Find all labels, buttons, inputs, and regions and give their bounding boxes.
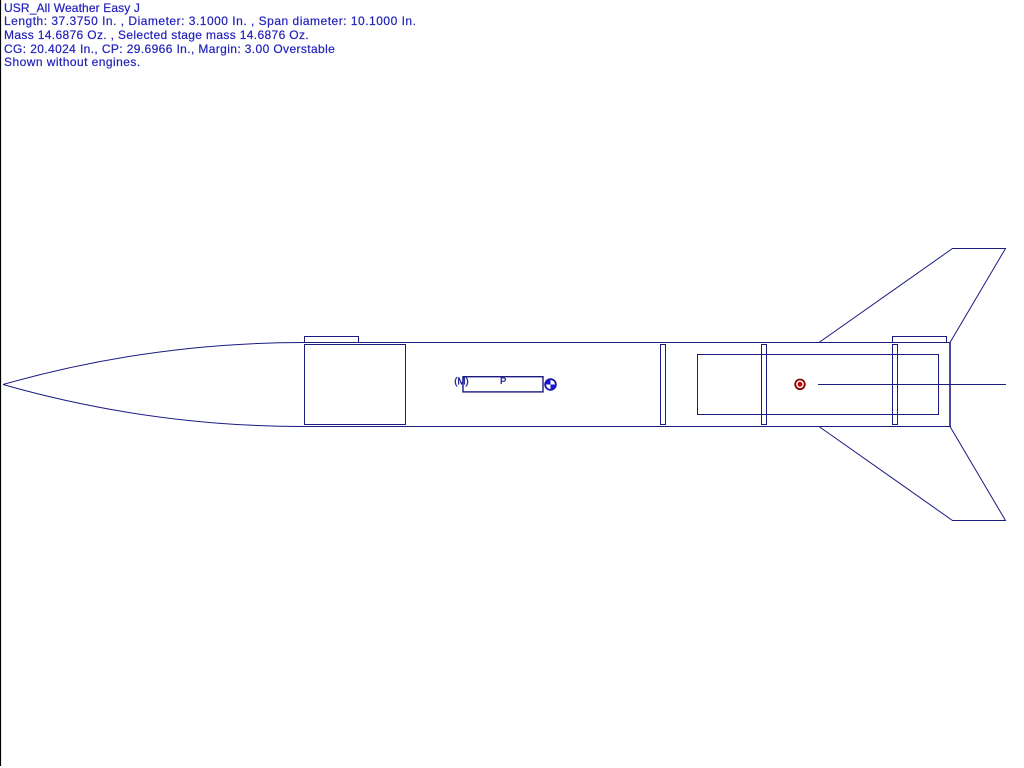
svg-text:(M): (M) bbox=[454, 376, 468, 387]
svg-text:P: P bbox=[500, 376, 506, 387]
